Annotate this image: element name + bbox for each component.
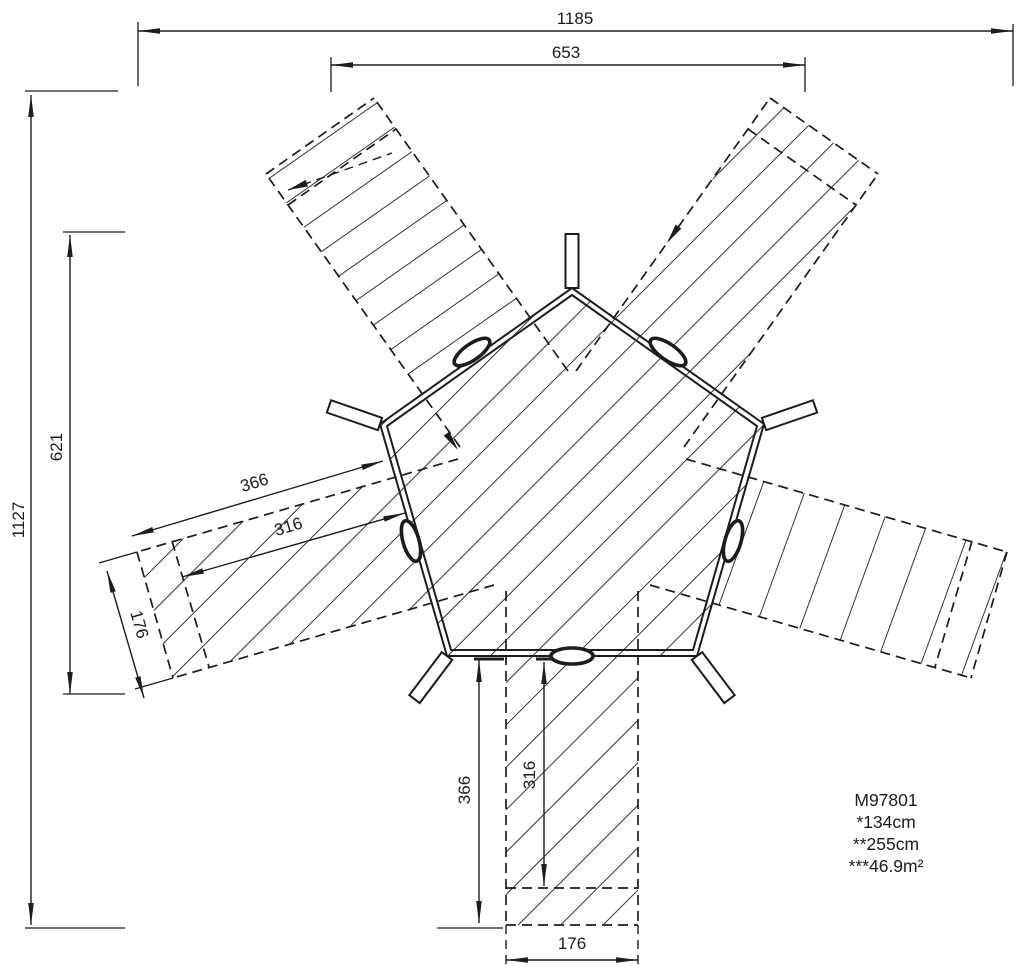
dim-label-left-arm-length: 366 (238, 470, 271, 496)
legend-model: M97801 (854, 790, 917, 810)
legend-block: M97801 *134cm **255cm ***46.9m² (849, 790, 924, 876)
dim-label-top-opening: 653 (552, 43, 580, 62)
dim-label-bottom-arm-width: 176 (558, 934, 586, 953)
post-top (566, 234, 579, 288)
dim-label-overall-width: 1185 (557, 9, 594, 28)
dimension-top-opening: 653 (331, 43, 805, 92)
plan-view-drawing: 1185 653 1127 621 366 316 176 366 316 (0, 0, 1024, 972)
legend-area: ***46.9m² (849, 856, 924, 876)
post-right (762, 400, 817, 430)
post-left (327, 400, 382, 430)
dim-label-upper-left-height: 621 (47, 433, 66, 461)
dim-label-bottom-arm-inner: 316 (520, 761, 539, 789)
dimension-overall-height: 1127 (9, 91, 125, 928)
post-bottom-left (409, 652, 452, 703)
technical-drawing-page: 1185 653 1127 621 366 316 176 366 316 (0, 0, 1024, 972)
legend-diameter: **255cm (853, 834, 919, 854)
post-bottom-right (692, 652, 735, 703)
dimension-upper-left-height: 621 (47, 232, 125, 694)
dim-label-overall-height: 1127 (9, 502, 28, 539)
connector-bottom (551, 648, 593, 664)
dim-label-bottom-arm-length: 366 (455, 776, 474, 804)
dim-label-left-arm-width: 176 (126, 608, 152, 641)
legend-height: *134cm (856, 812, 915, 832)
